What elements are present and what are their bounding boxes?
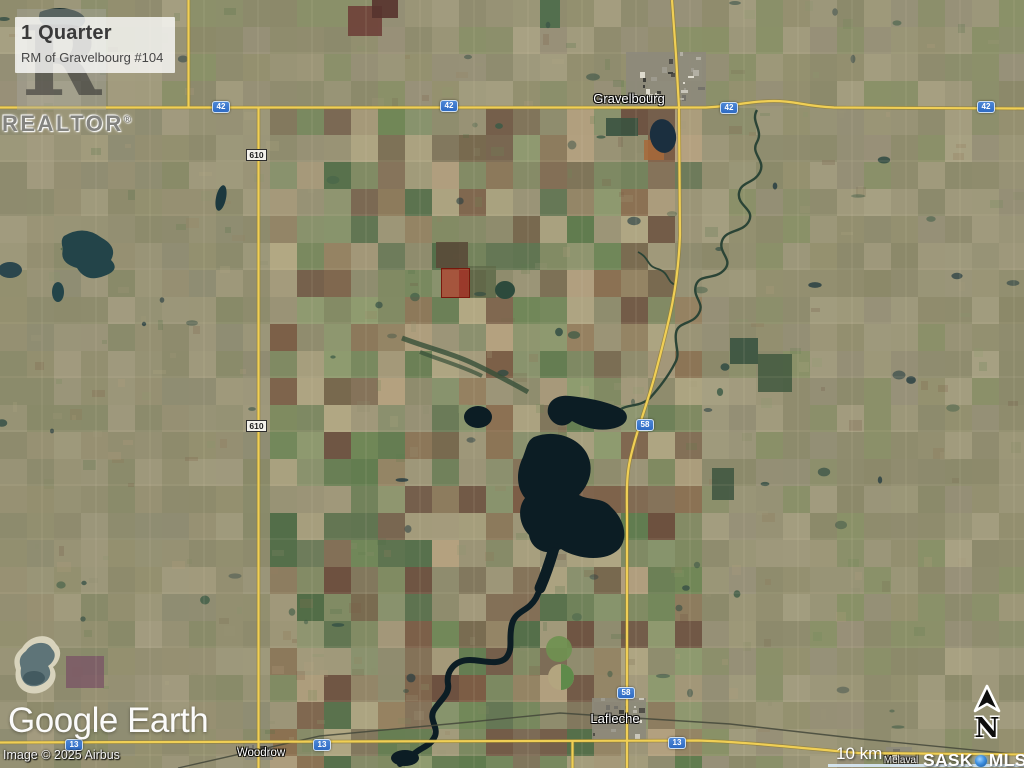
highway-shield-42: 42	[977, 101, 995, 113]
town-label-gravelbourg: Gravelbourg	[593, 91, 665, 106]
highway-shield-610: 610	[246, 420, 267, 432]
listing-title: 1 Quarter	[21, 22, 163, 45]
mls-diamond-icon	[975, 755, 987, 767]
highway-shield-58: 58	[617, 687, 635, 699]
sask-mls-prefix: SASK	[923, 750, 973, 768]
highway-shield-42: 42	[440, 100, 458, 112]
town-label-woodrow: Woodrow	[237, 747, 285, 759]
north-arrow-icon	[969, 684, 1005, 713]
highway-shield-58: 58	[636, 419, 654, 431]
highway-shield-13: 13	[668, 737, 686, 749]
listing-subtitle: RM of Gravelbourg #104	[21, 50, 163, 65]
north-arrow: N	[969, 684, 1005, 742]
sask-mls-logo: SASK MLS ®	[923, 750, 1024, 768]
listing-map-image: Gravelbourg Lafleche Woodrow Melaval 42 …	[0, 0, 1024, 768]
realtor-wordmark-text: REALTOR	[2, 111, 124, 136]
realtor-wordmark: REALTOR®	[2, 111, 131, 137]
highway-shield-610: 610	[246, 149, 267, 161]
imagery-credit: Image © 2025 Airbus	[3, 748, 120, 762]
satellite-map-canvas	[0, 0, 1024, 768]
highway-shield-42: 42	[212, 101, 230, 113]
registered-symbol: ®	[124, 115, 131, 126]
scale-bar-label: 10 km	[836, 744, 882, 764]
north-letter: N	[969, 715, 1005, 742]
sask-mls-suffix: MLS	[989, 750, 1024, 768]
listing-title-box: 1 Quarter RM of Gravelbourg #104	[15, 17, 175, 73]
town-label-lafleche: Lafleche	[590, 711, 639, 726]
google-earth-logo: Google Earth	[8, 701, 208, 741]
highway-shield-42: 42	[720, 102, 738, 114]
highlighted-parcel	[441, 268, 470, 298]
highway-shield-13: 13	[313, 739, 331, 751]
